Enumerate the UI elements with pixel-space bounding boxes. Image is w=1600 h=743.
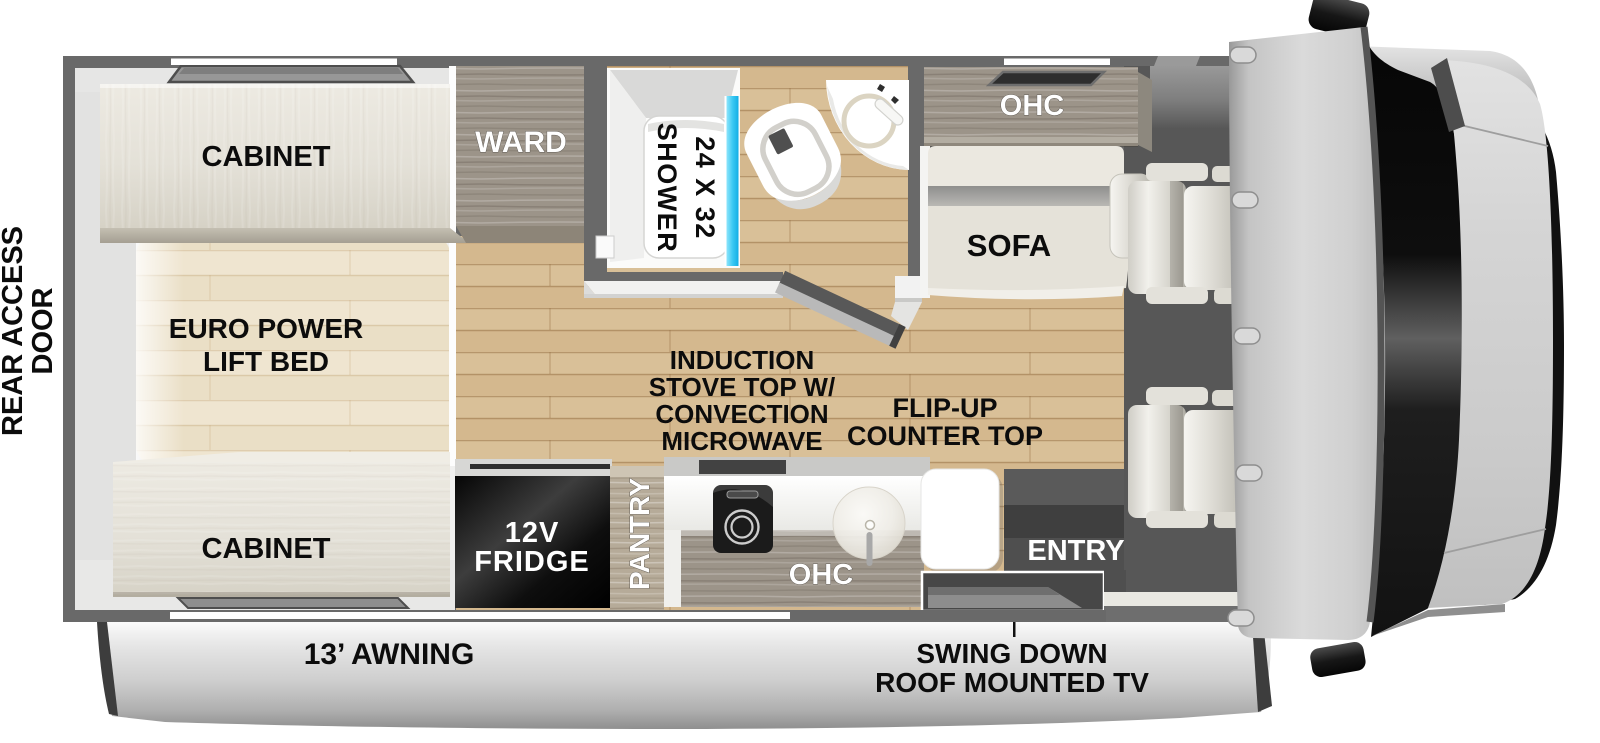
svg-text:EURO POWER: EURO POWER — [169, 313, 363, 344]
svg-text:ENTRY: ENTRY — [1027, 535, 1124, 567]
svg-text:OHC: OHC — [1000, 90, 1065, 122]
svg-text:INDUCTIONSTOVE TOP W/CONVECTIO: INDUCTIONSTOVE TOP W/CONVECTIONMICROWAVE — [649, 345, 835, 456]
svg-text:CABINET: CABINET — [202, 141, 331, 173]
svg-text:CABINET: CABINET — [202, 533, 331, 565]
svg-text:13’ AWNING: 13’ AWNING — [304, 638, 475, 671]
svg-text:WARD: WARD — [475, 126, 567, 159]
svg-text:OHC: OHC — [789, 559, 854, 591]
svg-text:LIFT BED: LIFT BED — [203, 346, 329, 377]
svg-text:PANTRY: PANTRY — [624, 478, 655, 590]
svg-text:SOFA: SOFA — [967, 228, 1051, 263]
